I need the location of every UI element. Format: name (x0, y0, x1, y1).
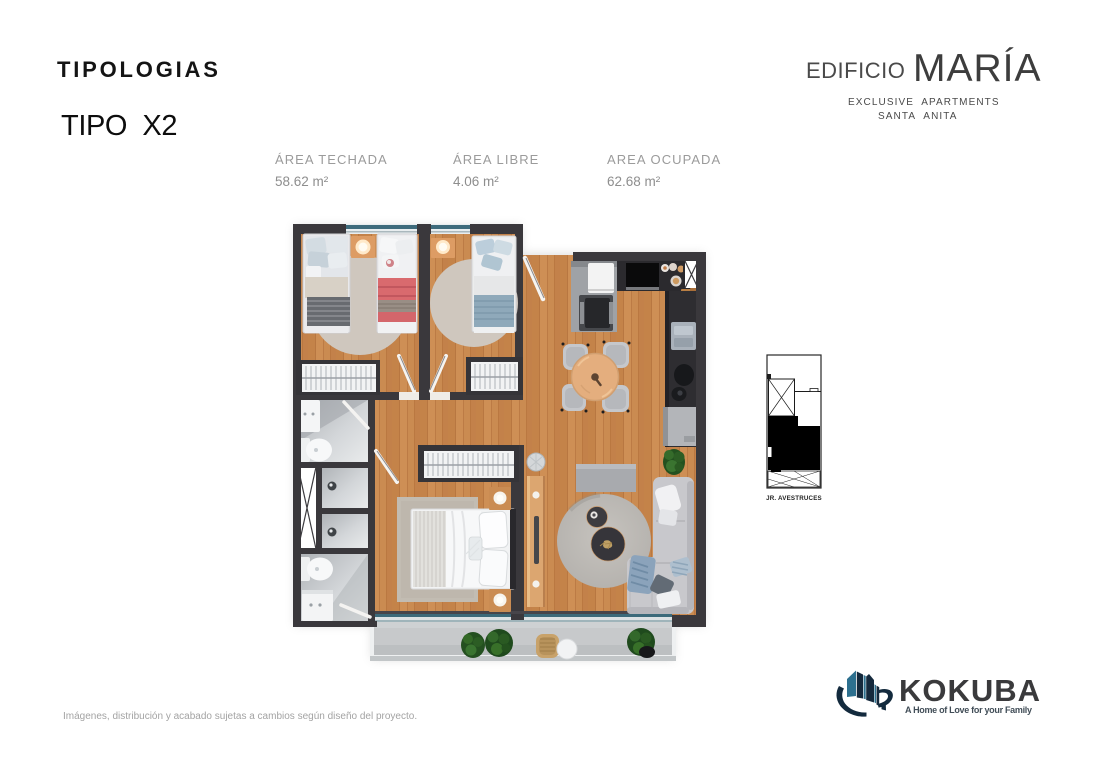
svg-text:JR. AVESTRUCES: JR. AVESTRUCES (766, 495, 822, 502)
svg-text:A Home of Love for your Family: A Home of Love for your Family (905, 705, 1032, 715)
svg-text:KOKUBA: KOKUBA (899, 673, 1041, 708)
